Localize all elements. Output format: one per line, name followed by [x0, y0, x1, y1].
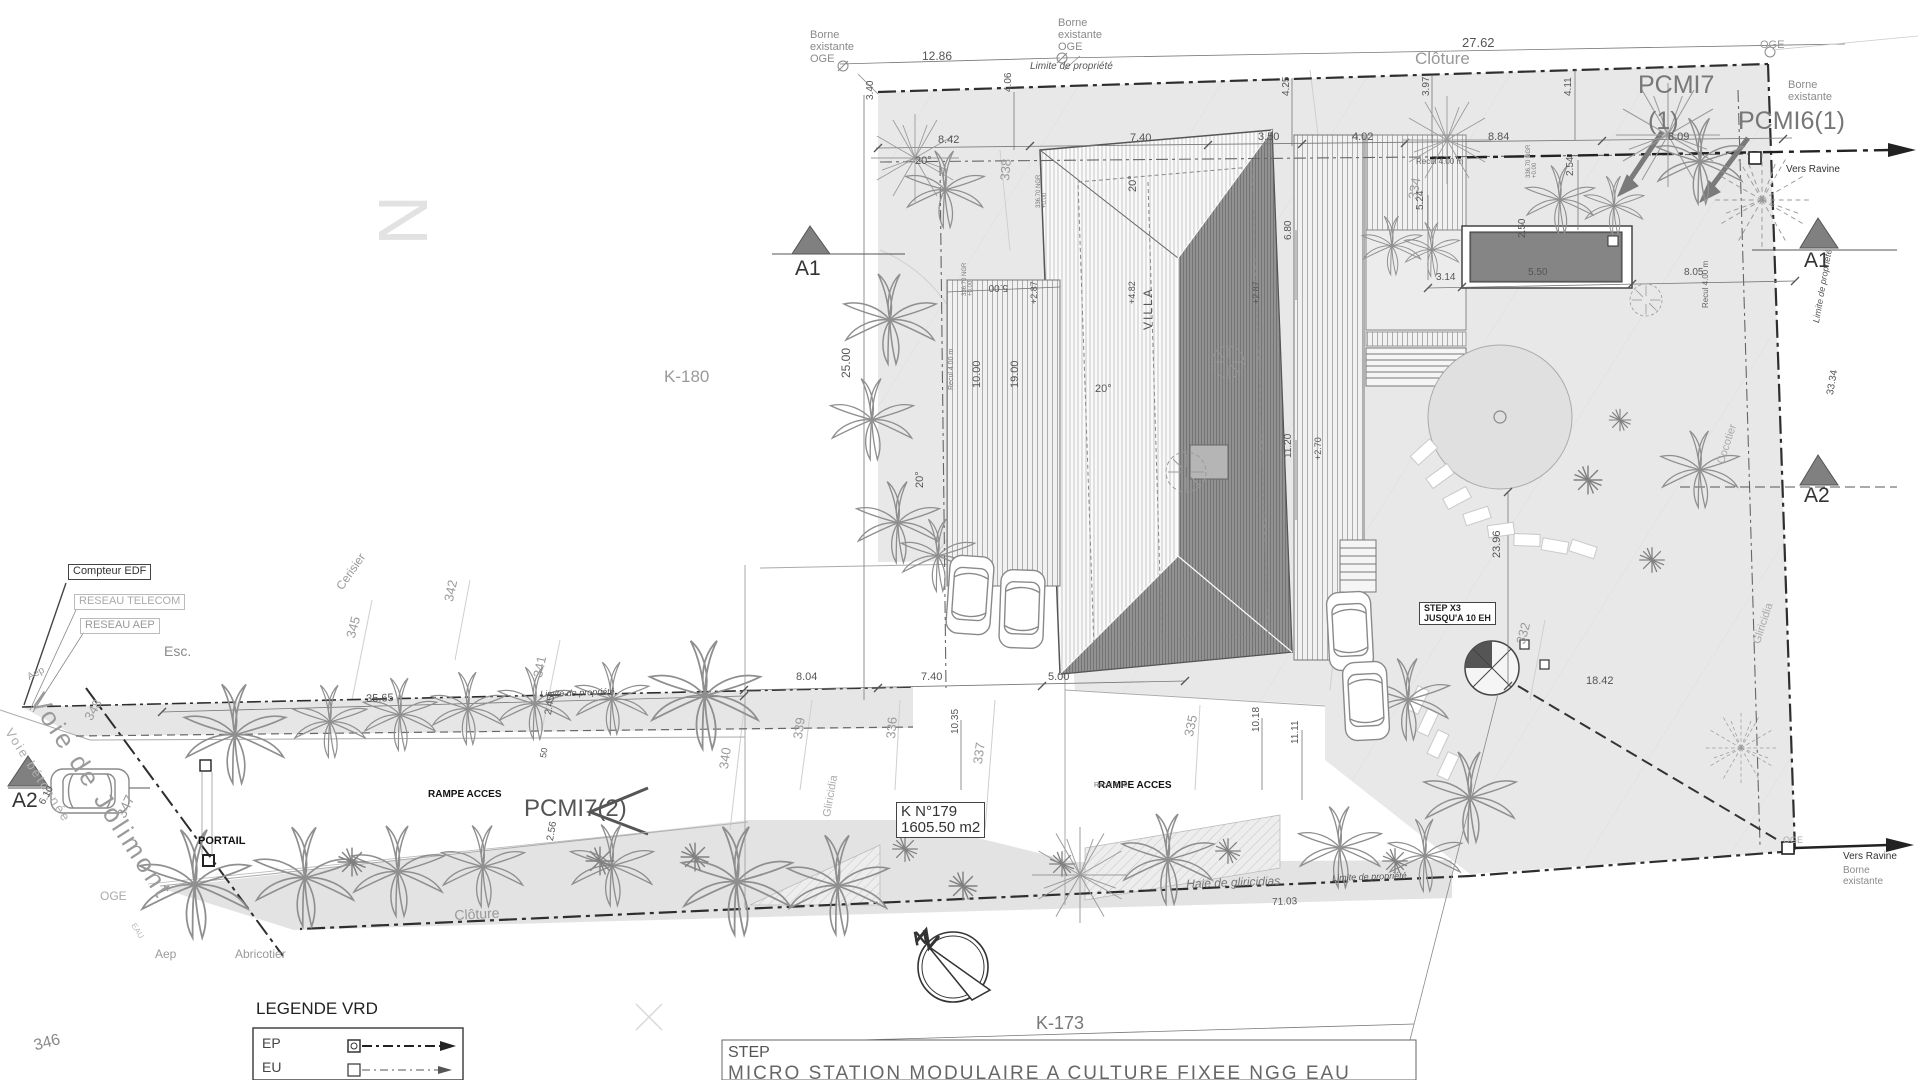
portail-gate	[200, 760, 214, 866]
north-compass-icon	[916, 930, 990, 1002]
car-icon	[999, 569, 1046, 648]
car-icon	[945, 555, 994, 636]
stepping-stone	[1514, 534, 1540, 547]
step-note-box	[722, 1040, 1416, 1080]
parcel-fills	[22, 64, 1795, 930]
swimming-pool	[1462, 226, 1632, 288]
site-plan-canvas: Borne existante OGE12.86Borne existante …	[0, 0, 1920, 1080]
car-icon	[51, 769, 129, 813]
car-icon	[1326, 591, 1374, 671]
scan-artifacts	[636, 1004, 662, 1030]
plan-linework	[0, 0, 1920, 1080]
villa-roof	[1040, 130, 1292, 674]
borne-markers	[838, 47, 1775, 71]
legend-box	[253, 1028, 463, 1080]
car-icon	[1342, 661, 1390, 741]
